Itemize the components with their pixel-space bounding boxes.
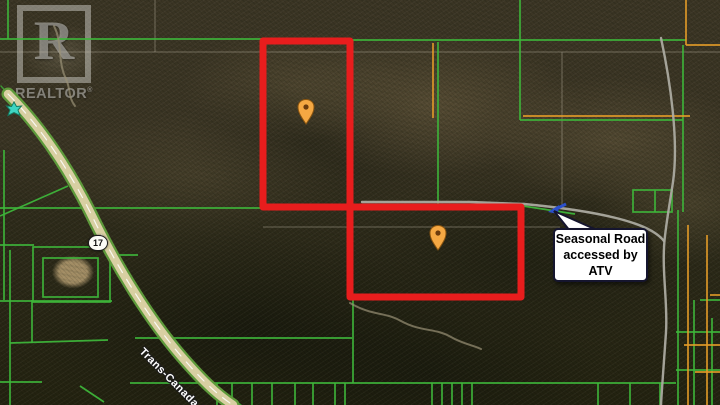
property-boundary-red [350, 207, 521, 297]
map-overlay [0, 0, 720, 405]
parcel-rect-green [43, 258, 98, 297]
callout-line: ATV [588, 263, 612, 279]
creek-line [350, 303, 481, 349]
pin-body [430, 226, 446, 251]
pin-dot [435, 230, 440, 235]
highway-casing [8, 94, 233, 405]
seasonal-road-callout: Seasonal Road accessed by ATV [553, 228, 648, 282]
parcel-rect-green [633, 190, 672, 212]
pin-dot [303, 104, 308, 109]
map-pin-icon [430, 226, 446, 251]
callout-line: Seasonal Road [556, 231, 646, 247]
highway-17-shield-number: 17 [93, 238, 103, 248]
listing-map-image: R REALTOR® 17 Trans-Canada Hwy Seasonal … [0, 0, 720, 405]
creek-line [54, 26, 75, 106]
map-pin-icon [298, 100, 314, 125]
seasonal-road [661, 38, 675, 405]
parcel-line-green [0, 186, 68, 216]
pin-body [298, 100, 314, 125]
parcel-line-green [80, 386, 104, 402]
callout-line: accessed by [563, 247, 637, 263]
parcel-line-green [10, 340, 108, 343]
highway-17-shield: 17 [88, 235, 108, 251]
